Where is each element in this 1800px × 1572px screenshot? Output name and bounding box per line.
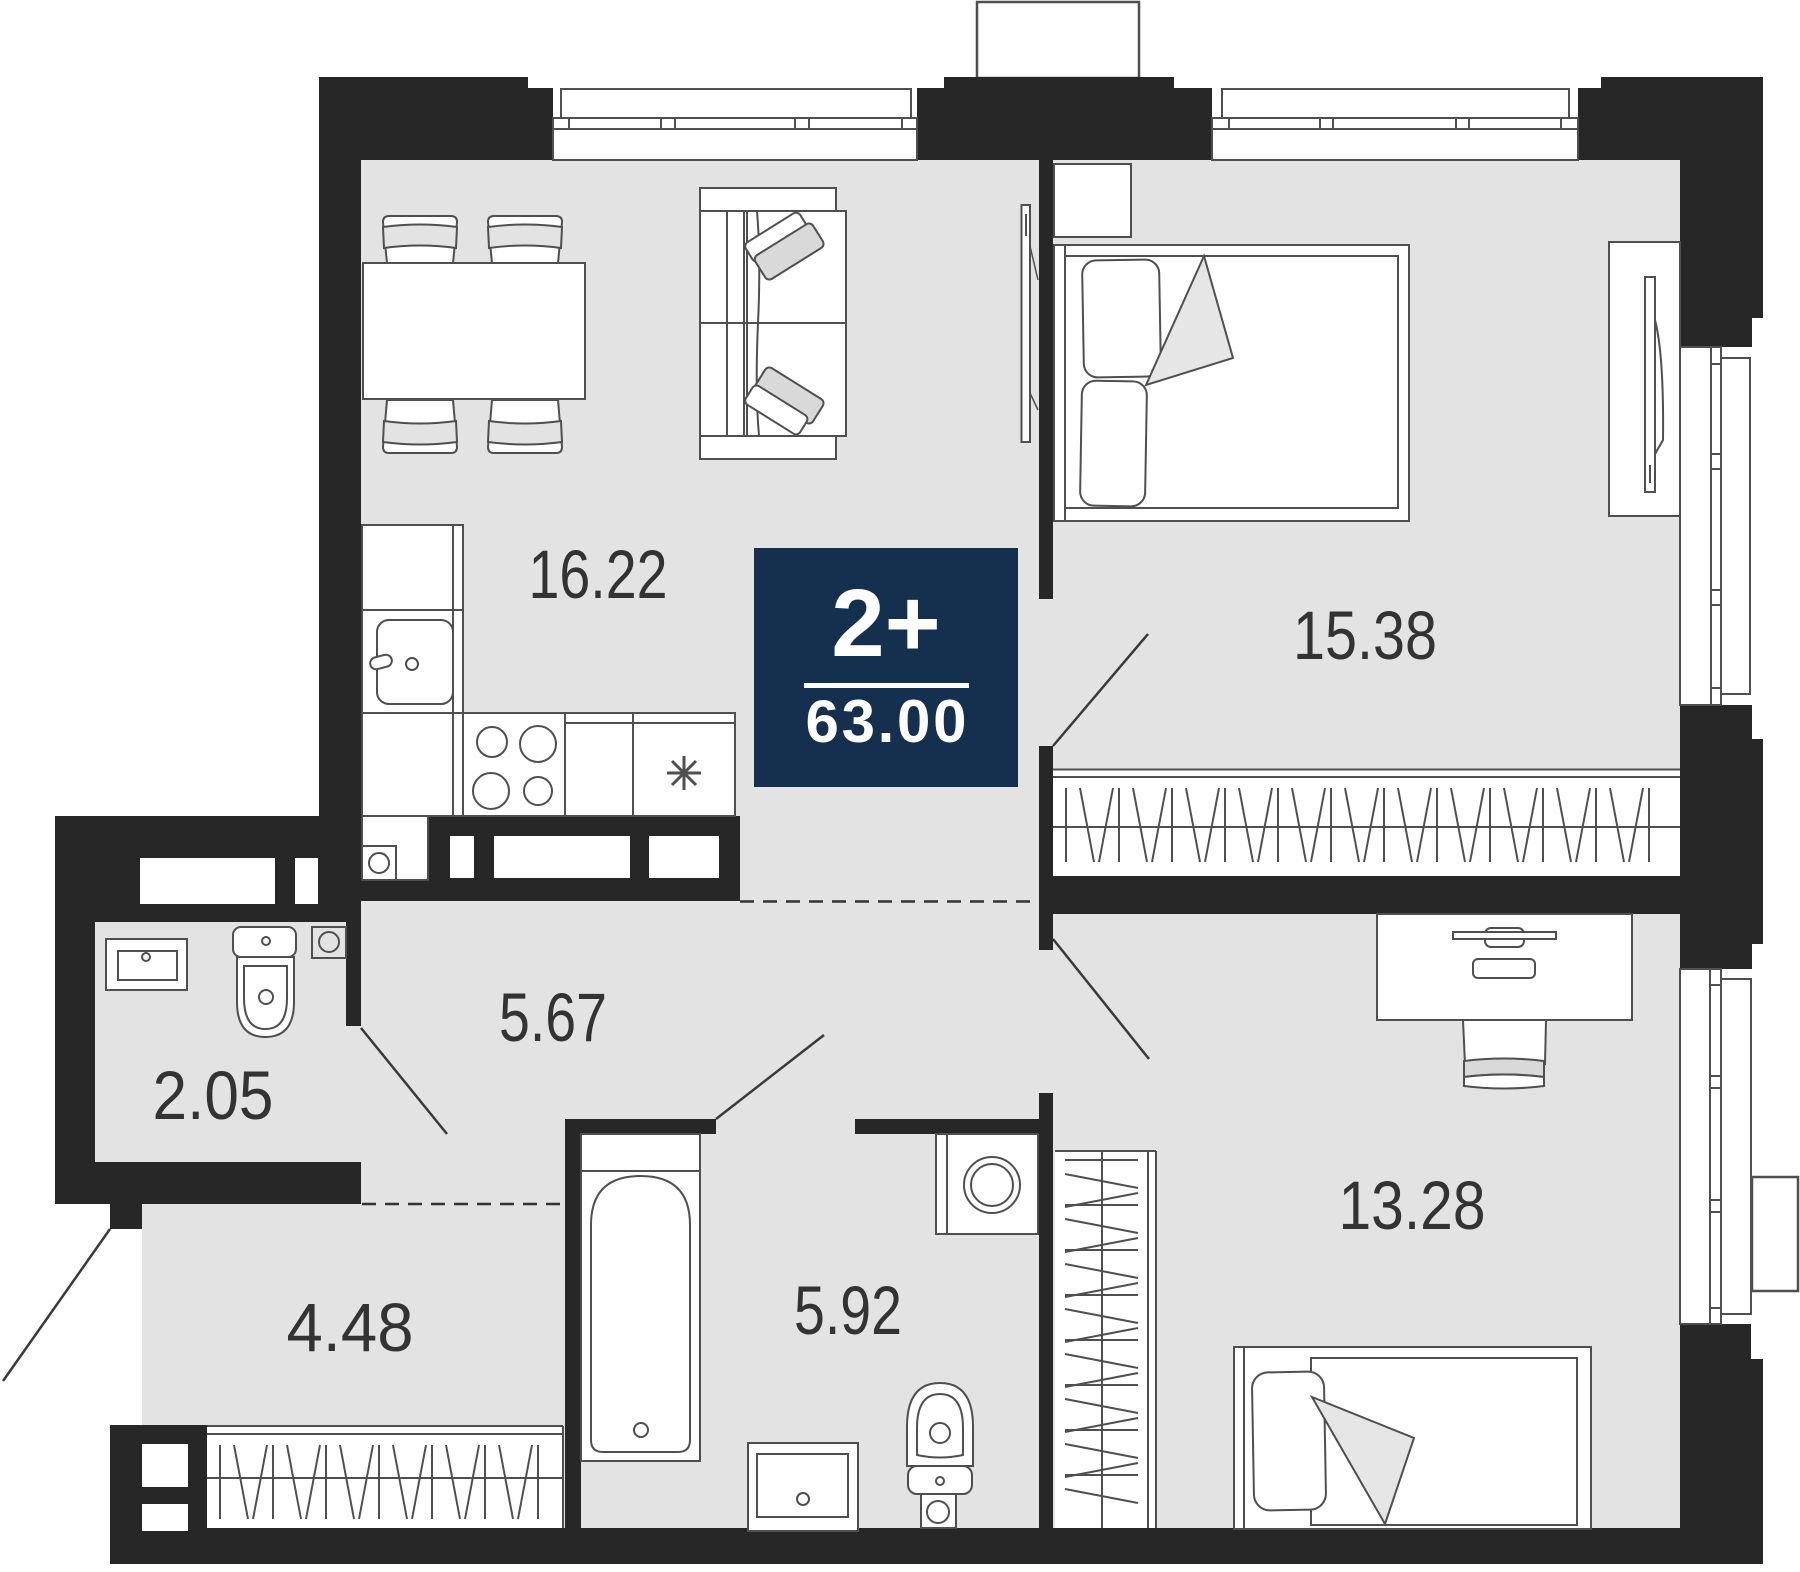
svg-text:5.67: 5.67 bbox=[499, 979, 607, 1056]
svg-text:5.92: 5.92 bbox=[794, 1272, 902, 1349]
svg-text:15.38: 15.38 bbox=[1293, 597, 1437, 674]
svg-text:16.22: 16.22 bbox=[529, 536, 668, 613]
svg-text:2.05: 2.05 bbox=[153, 1057, 274, 1134]
svg-text:2+: 2+ bbox=[831, 570, 940, 677]
svg-text:63.00: 63.00 bbox=[806, 688, 967, 755]
svg-text:4.48: 4.48 bbox=[287, 1289, 414, 1366]
svg-text:13.28: 13.28 bbox=[1339, 1167, 1486, 1244]
